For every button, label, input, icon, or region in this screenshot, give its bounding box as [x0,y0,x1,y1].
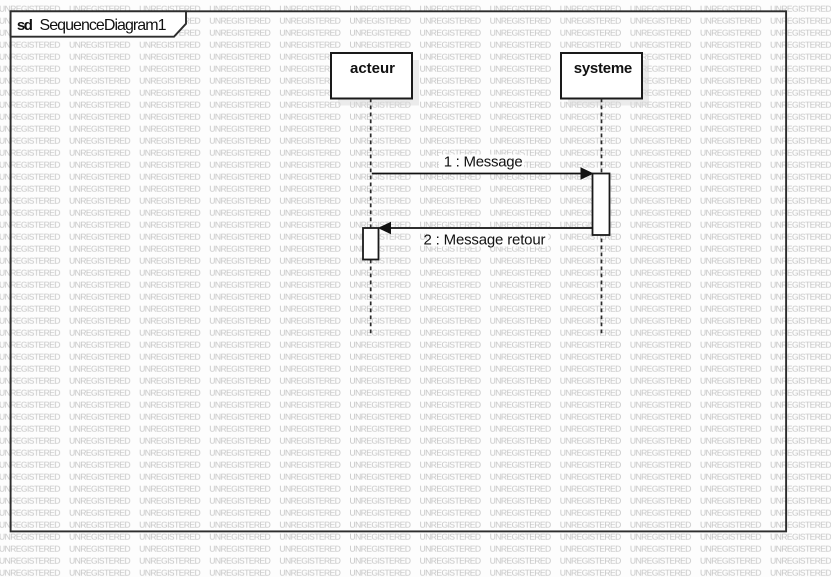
svg-text:1 : Message: 1 : Message [444,153,523,170]
svg-text:systeme: systeme [574,60,633,77]
svg-text:acteur: acteur [350,60,395,77]
svg-text:sdSequenceDiagram1: sdSequenceDiagram1 [17,17,167,34]
svg-text:2 : Message retour: 2 : Message retour [424,232,546,249]
